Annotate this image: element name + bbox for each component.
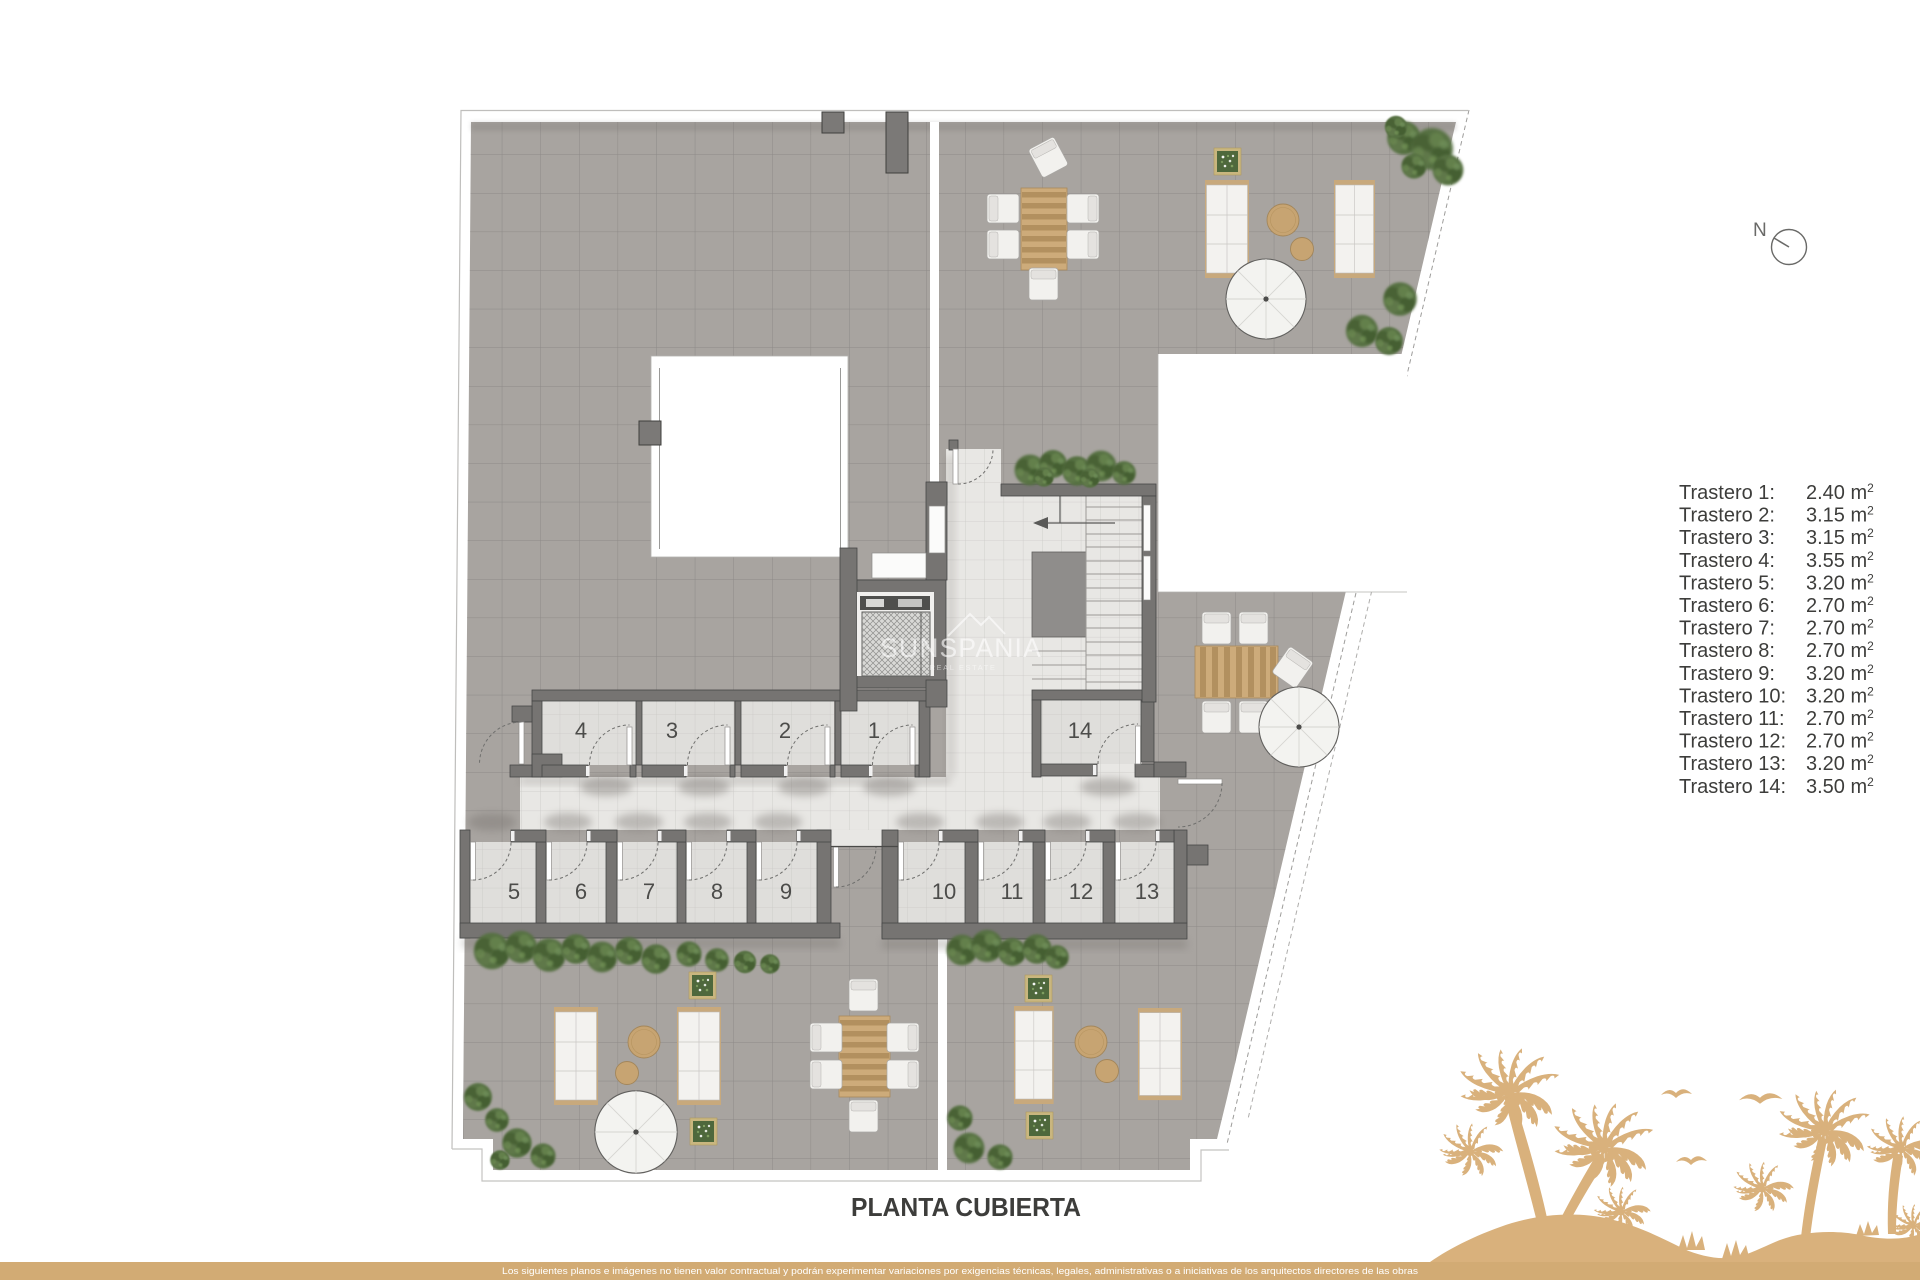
- svg-text:14: 14: [1068, 718, 1092, 743]
- svg-text:2.70 m2: 2.70 m2: [1806, 617, 1874, 640]
- svg-text:N: N: [1753, 220, 1767, 241]
- svg-text:Trastero 12:: Trastero 12:: [1679, 731, 1786, 753]
- svg-text:Trastero 5:: Trastero 5:: [1679, 572, 1775, 594]
- svg-text:Trastero 2:: Trastero 2:: [1679, 505, 1775, 527]
- svg-text:Trastero 11:: Trastero 11:: [1679, 708, 1785, 730]
- svg-text:3.15 m2: 3.15 m2: [1806, 526, 1874, 549]
- svg-text:9: 9: [780, 879, 792, 904]
- svg-text:3: 3: [666, 718, 678, 743]
- svg-text:Los siguientes planos e imágen: Los siguientes planos e imágenes no tien…: [502, 1266, 1418, 1277]
- svg-text:12: 12: [1069, 879, 1093, 904]
- svg-text:2: 2: [779, 718, 791, 743]
- svg-text:2.70 m2: 2.70 m2: [1806, 707, 1874, 730]
- svg-text:SUNSPANIA: SUNSPANIA: [880, 633, 1042, 663]
- svg-text:8: 8: [711, 879, 723, 904]
- svg-text:Trastero 10:: Trastero 10:: [1679, 685, 1786, 707]
- svg-text:6: 6: [575, 879, 587, 904]
- svg-text:Trastero 1:: Trastero 1:: [1679, 482, 1775, 504]
- svg-text:Trastero 6:: Trastero 6:: [1679, 595, 1775, 617]
- svg-text:7: 7: [643, 879, 655, 904]
- svg-text:3.20 m2: 3.20 m2: [1806, 571, 1874, 594]
- svg-text:11: 11: [1001, 879, 1024, 904]
- svg-text:5: 5: [508, 879, 520, 904]
- svg-text:3.20 m2: 3.20 m2: [1806, 684, 1874, 707]
- svg-text:1: 1: [868, 718, 880, 743]
- svg-text:10: 10: [932, 879, 956, 904]
- svg-text:Trastero 8:: Trastero 8:: [1679, 640, 1775, 662]
- svg-text:2.70 m2: 2.70 m2: [1806, 594, 1874, 617]
- svg-text:2.40 m2: 2.40 m2: [1806, 481, 1874, 504]
- svg-text:3.50 m2: 3.50 m2: [1806, 775, 1874, 798]
- svg-text:3.20 m2: 3.20 m2: [1806, 662, 1874, 685]
- svg-text:REAL ESTATE: REAL ESTATE: [929, 663, 996, 672]
- svg-text:PLANTA CUBIERTA: PLANTA CUBIERTA: [851, 1192, 1081, 1222]
- svg-text:Trastero 4:: Trastero 4:: [1679, 550, 1775, 572]
- svg-text:Trastero 9:: Trastero 9:: [1679, 663, 1775, 685]
- svg-text:2.70 m2: 2.70 m2: [1806, 730, 1874, 753]
- svg-text:3.55 m2: 3.55 m2: [1806, 549, 1874, 572]
- svg-text:3.15 m2: 3.15 m2: [1806, 504, 1874, 527]
- svg-text:2.70 m2: 2.70 m2: [1806, 639, 1874, 662]
- svg-text:4: 4: [575, 718, 587, 743]
- svg-text:Trastero 7:: Trastero 7:: [1679, 618, 1775, 640]
- svg-text:3.20 m2: 3.20 m2: [1806, 752, 1874, 775]
- svg-text:Trastero 3:: Trastero 3:: [1679, 527, 1775, 549]
- svg-text:Trastero 13:: Trastero 13:: [1679, 753, 1786, 775]
- svg-text:13: 13: [1135, 879, 1159, 904]
- svg-text:Trastero 14:: Trastero 14:: [1679, 776, 1786, 798]
